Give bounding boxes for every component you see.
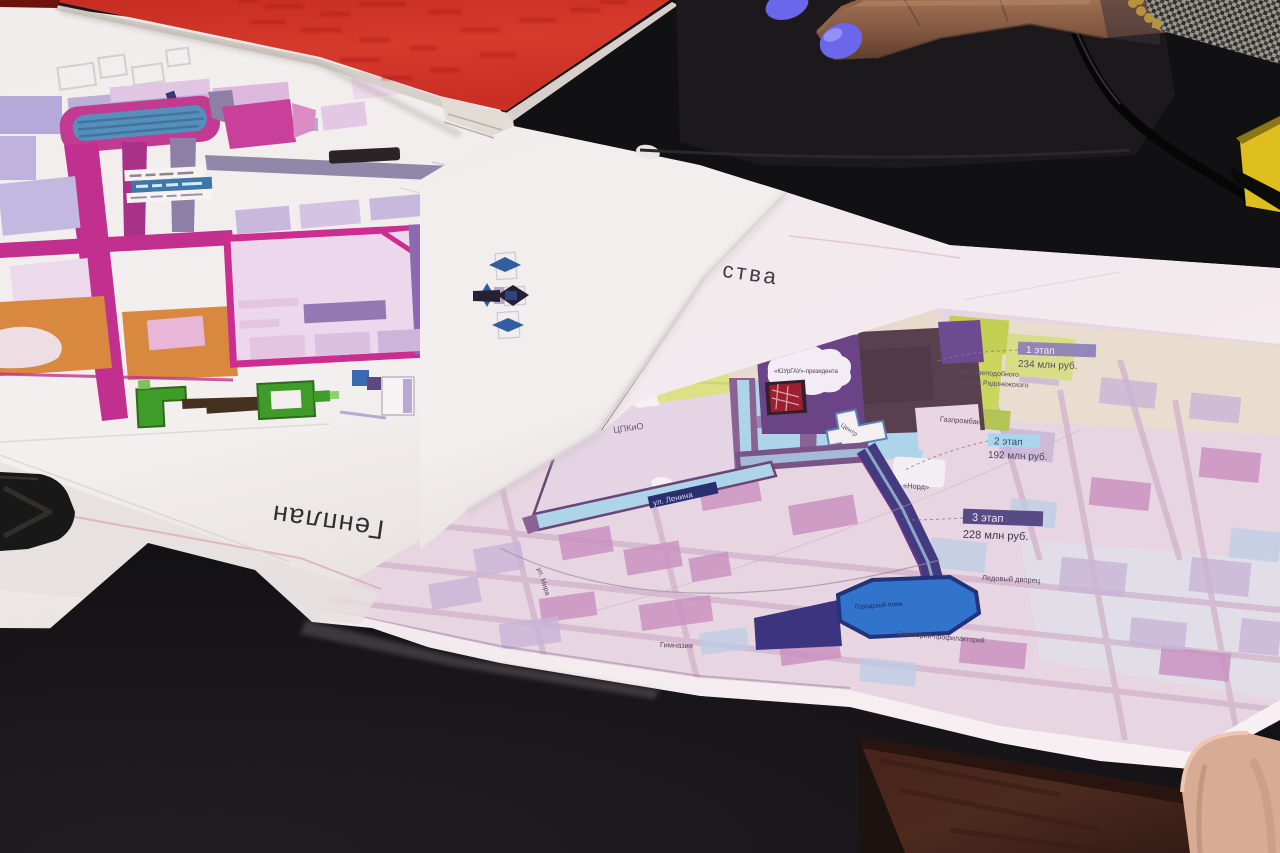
svg-text:192 млн руб.: 192 млн руб.: [988, 449, 1048, 463]
svg-text:3 этап: 3 этап: [972, 512, 1004, 525]
svg-text:1 этап: 1 этап: [1026, 345, 1055, 357]
svg-text:«ЮУрГАУ»-президента: «ЮУрГАУ»-президента: [774, 369, 838, 375]
svg-text:«Норд»: «Норд»: [903, 481, 930, 492]
svg-text:234 млн руб.: 234 млн руб.: [1018, 358, 1078, 372]
svg-text:228 млн руб.: 228 млн руб.: [963, 529, 1029, 543]
svg-text:2 этап: 2 этап: [994, 436, 1023, 448]
svg-text:Гимназия: Гимназия: [660, 640, 693, 650]
